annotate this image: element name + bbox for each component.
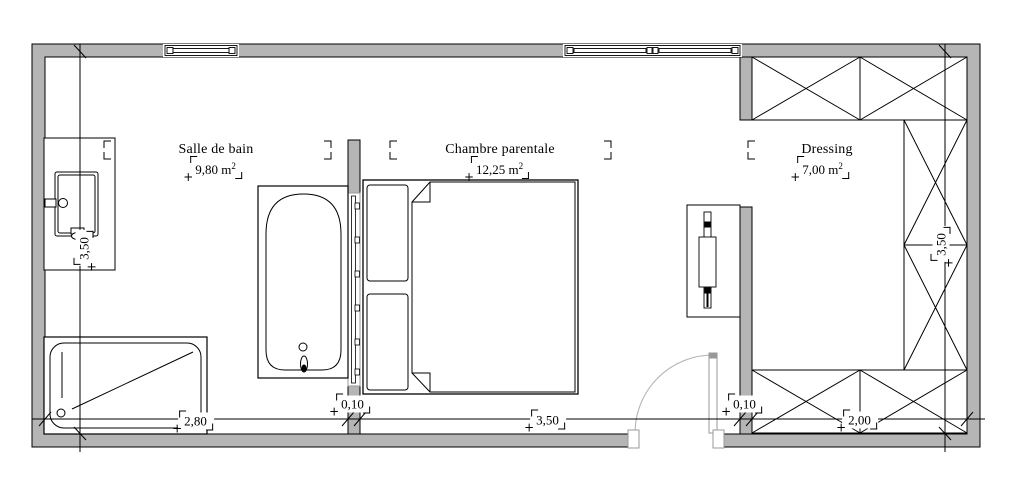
plus-mark: +: [721, 405, 731, 420]
dim-wall-2[interactable]: 0,10+: [727, 396, 763, 413]
plus-mark: +: [790, 170, 800, 185]
bathtub[interactable]: [258, 186, 348, 378]
corner-mark: [190, 156, 197, 163]
room-area-bathroom[interactable]: 9,80 m2+: [189, 158, 243, 178]
window-double-bedroom[interactable]: [563, 44, 742, 57]
pillow: [367, 185, 408, 281]
pillow: [367, 294, 408, 390]
dim-right-height[interactable]: 3,50+: [933, 226, 950, 262]
corner-mark: [728, 394, 735, 401]
corner-mark: [944, 227, 951, 234]
wardrobe-top-row[interactable]: [752, 57, 967, 120]
corner-mark: [797, 156, 804, 163]
room-area-bedroom[interactable]: 12,25 m2+: [470, 158, 530, 178]
bathroom-partition-wall[interactable]: [348, 140, 360, 434]
dressing-partition-wall[interactable]: [740, 57, 752, 434]
door-jamb-left: [628, 430, 639, 448]
radiator[interactable]: [687, 205, 740, 317]
corner-mark: [74, 258, 81, 265]
dim-bathroom-width[interactable]: 2,80+: [178, 413, 214, 430]
door-leaf: [709, 353, 717, 433]
plus-mark: +: [524, 421, 534, 436]
corner-mark: [870, 423, 877, 430]
corner-mark: [755, 407, 762, 414]
sink-faucet: [45, 199, 56, 207]
dim-bedroom-width[interactable]: 3,50+: [530, 412, 566, 429]
plus-mark: +: [85, 262, 100, 272]
plus-mark: +: [329, 405, 339, 420]
bed-cover: [412, 182, 575, 392]
corner-mark: [336, 394, 343, 401]
plus-mark: +: [942, 258, 957, 268]
room-area-dressing[interactable]: 7,00 m2+: [796, 158, 850, 178]
corner-mark: [179, 411, 186, 418]
corner-mark: [471, 156, 478, 163]
window-bathroom[interactable]: [163, 44, 239, 57]
corner-mark: [931, 254, 938, 261]
bathtub-faucet: [299, 343, 307, 351]
room-label-dressing[interactable]: Dressing: [801, 142, 852, 158]
corner-mark: [843, 410, 850, 417]
room-label-bedroom[interactable]: Chambre parentale: [445, 142, 555, 158]
door-swing-arc: [635, 355, 713, 433]
corner-mark: [522, 172, 529, 179]
corner-mark: [206, 424, 213, 431]
dim-dressing-width[interactable]: 2,00+: [842, 412, 878, 429]
sliding-partition[interactable]: [348, 193, 360, 386]
plus-mark: +: [464, 170, 474, 185]
floor-plan-canvas: Salle de bain 9,80 m2+ Chambre parentale…: [0, 0, 1023, 488]
plus-mark: +: [183, 170, 193, 185]
door-jamb-right: [713, 430, 724, 448]
door[interactable]: [628, 353, 724, 448]
plus-mark: +: [172, 422, 182, 437]
dim-wall-1[interactable]: 0,10+: [335, 396, 371, 413]
double-bed[interactable]: [363, 180, 578, 394]
dim-left-height[interactable]: 3,50+: [76, 230, 93, 266]
shower-drain: [57, 409, 65, 417]
corner-mark: [842, 172, 849, 179]
corner-mark: [87, 231, 94, 238]
plus-mark: +: [836, 421, 846, 436]
corner-mark: [558, 423, 565, 430]
corner-mark: [363, 407, 370, 414]
corner-mark: [531, 410, 538, 417]
corner-mark: [235, 172, 242, 179]
